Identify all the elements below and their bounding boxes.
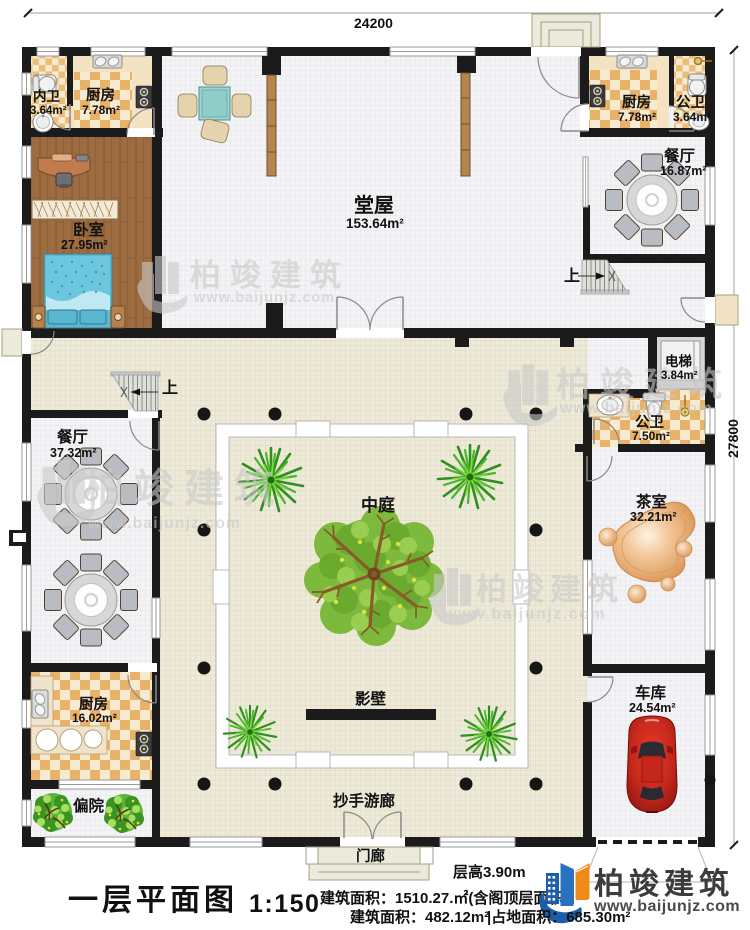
svg-text:偏院: 偏院 (73, 796, 105, 815)
svg-text:建筑面积：482.12m²: 建筑面积：482.12m² (350, 908, 489, 926)
svg-text:16.87m²: 16.87m² (660, 164, 707, 178)
svg-text:www.baijunjz.com: www.baijunjz.com (193, 290, 335, 306)
svg-text:32.21m²: 32.21m² (630, 510, 677, 524)
svg-text:公卫: 公卫 (676, 94, 705, 111)
svg-text:柏竣建筑: 柏竣建筑 (556, 365, 732, 404)
svg-text:16.02m²: 16.02m² (72, 711, 117, 725)
svg-text:茶室: 茶室 (636, 492, 667, 511)
svg-text:上: 上 (162, 379, 178, 397)
svg-text:24200: 24200 (354, 15, 393, 31)
svg-text:门廊: 门廊 (356, 847, 385, 865)
svg-text:24.54m²: 24.54m² (629, 701, 676, 715)
svg-text:建筑面积：1510.27.㎡(含阁顶层面积：: 建筑面积：1510.27.㎡(含阁顶层面积： (320, 889, 578, 907)
svg-text:餐厅: 餐厅 (663, 146, 696, 165)
svg-text:厨房: 厨房 (86, 86, 115, 104)
svg-text:一层平面图: 一层平面图 (68, 884, 238, 917)
svg-text:电梯: 电梯 (665, 353, 693, 369)
svg-text:上: 上 (564, 267, 580, 285)
svg-text:中庭: 中庭 (361, 495, 395, 515)
svg-text:7.78m²: 7.78m² (618, 110, 656, 124)
svg-text:柏竣建筑: 柏竣建筑 (594, 867, 734, 901)
svg-text:柏竣建筑: 柏竣建筑 (84, 467, 284, 511)
svg-text:柏竣建筑: 柏竣建筑 (190, 258, 350, 293)
svg-text:抄手游廊: 抄手游廊 (333, 791, 396, 810)
svg-text:|占地面积：685.30m²: |占地面积：685.30m² (487, 908, 630, 926)
svg-text:车库: 车库 (635, 683, 667, 702)
svg-text:内卫: 内卫 (33, 88, 60, 104)
svg-text:堂屋: 堂屋 (354, 194, 394, 217)
svg-text:影壁: 影壁 (355, 689, 387, 708)
svg-text:餐厅: 餐厅 (56, 427, 89, 446)
svg-text:153.64m²: 153.64m² (346, 216, 404, 231)
svg-text:厨房: 厨房 (622, 93, 651, 111)
svg-text:www.baijunjz.com: www.baijunjz.com (443, 606, 606, 623)
svg-text:7.78m²: 7.78m² (82, 103, 120, 117)
svg-text:7.50m²: 7.50m² (632, 429, 670, 443)
svg-text:层高3.90m: 层高3.90m (453, 863, 526, 881)
svg-text:1:150: 1:150 (249, 890, 320, 918)
svg-text:3.64m²: 3.64m² (30, 105, 67, 117)
svg-text:37.32m²: 37.32m² (50, 446, 97, 460)
svg-text:www.baijunjz.com: www.baijunjz.com (87, 515, 241, 532)
svg-text:卧室: 卧室 (73, 220, 104, 239)
svg-text:27800: 27800 (725, 419, 741, 458)
svg-text:3.84m²: 3.84m² (661, 370, 698, 382)
svg-text:3.64m²: 3.64m² (673, 110, 711, 124)
svg-text:柏竣建筑: 柏竣建筑 (476, 572, 624, 607)
svg-text:27.95m²: 27.95m² (61, 238, 108, 252)
